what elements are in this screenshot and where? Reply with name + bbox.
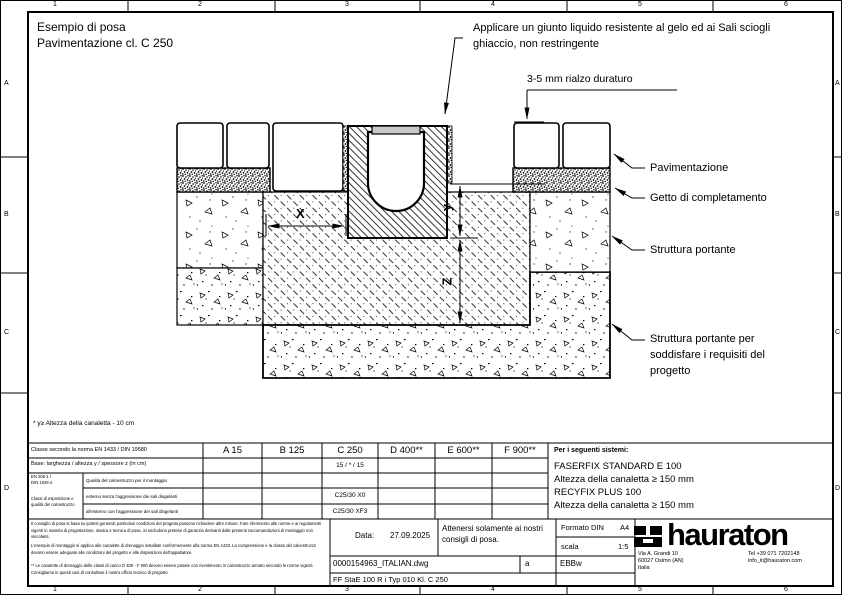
paving-block	[177, 123, 223, 168]
concrete-group-line4: qualità del calcestruzzo	[31, 502, 75, 509]
ruler-col-label: 2	[195, 1, 205, 8]
ruler-col-label: 6	[781, 1, 791, 8]
ruler-col-label: 3	[342, 586, 352, 593]
address-line1: Via A. Grandi 10	[638, 551, 678, 558]
hauraton-logo-icon	[634, 526, 662, 547]
drawing-title-line2: Pavimentazione cl. C 250	[37, 36, 173, 50]
concrete-value-c250: C25/30 X0	[322, 492, 378, 499]
ruler-col-label: 5	[635, 586, 645, 593]
joint-note-line1: Applicare un giunto liquido resistente a…	[473, 22, 770, 34]
ruler-row-label: B	[4, 211, 9, 218]
ruler-col-label: 4	[488, 1, 498, 8]
class-header: C 250	[322, 445, 378, 456]
ruler-col-label: 5	[635, 1, 645, 8]
phone: Tel +39 071 7202148	[748, 551, 800, 558]
ruler-col-label: 3	[342, 1, 352, 8]
date-label: Data:	[355, 531, 374, 540]
supporting-structure-left-lower	[177, 268, 263, 325]
bedding-left	[177, 168, 270, 192]
installation-note: Attenersi solamente ai nostri consigli d…	[442, 523, 550, 545]
doc-code: FF StaE 100 R i Typ 010 Kl. C 250	[333, 575, 448, 584]
ruler-row-label: D	[4, 485, 9, 492]
label-struttura-progetto-1: Struttura portante per	[650, 333, 755, 345]
disclaimer-paragraph-3: ** Le canalette di drenaggio delle class…	[31, 563, 327, 576]
system-line: Altezza della canaletta ≥ 150 mm	[554, 474, 694, 485]
table-row1-label: Classe secondo la norma EN 1433 / DIN 19…	[31, 447, 147, 453]
drawing-sheet: 1 2 3 4 5 6 1 2 3 4 5 6 A B C D A B C D …	[0, 0, 842, 595]
label-pavimentazione: Pavimentazione	[650, 162, 728, 174]
ruler-row-label: A	[4, 80, 9, 87]
ruler-col-label: 6	[781, 586, 791, 593]
cross-section-drawing	[177, 123, 610, 378]
class-header: F 900**	[492, 445, 548, 456]
email: info_it@hauraton.com	[748, 558, 802, 565]
address-line3: Italia	[638, 565, 650, 572]
systems-heading: Per i seguenti sistemi:	[554, 447, 628, 454]
concrete-row-label: Qualità del calcestruzzo per il montaggi…	[86, 478, 167, 483]
disclaimer-paragraph-2: L'esempio di montaggio si applica alle c…	[31, 543, 327, 556]
concrete-row-label: all'esterno con l'aggressione dei sali d…	[86, 509, 178, 514]
rialzo-note: 3-5 mm rialzo duraturo	[527, 73, 633, 85]
class-header: D 400**	[378, 445, 435, 456]
class-header: B 125	[262, 445, 322, 456]
format-value: A4	[620, 523, 629, 532]
scale-label: scala	[561, 542, 579, 551]
ruler-col-label: 1	[50, 586, 60, 593]
revision: a	[525, 559, 529, 568]
concrete-group-line2: DIN 1045-2	[31, 480, 52, 487]
footnote: * y≥ Altezza della canaletta - 10 cm	[33, 420, 134, 427]
drawing-canvas	[0, 0, 842, 595]
dimension-x-label: X	[296, 206, 305, 221]
class-header: E 600**	[435, 445, 492, 456]
concrete-value-c250: C25/30 XF3	[322, 508, 378, 515]
class-header: A 15	[203, 445, 262, 456]
label-struttura: Struttura portante	[650, 244, 736, 256]
grate	[372, 126, 420, 134]
author-initials: EBBw	[560, 559, 582, 568]
paving-block	[273, 123, 343, 191]
label-getto: Getto di completamento	[650, 192, 767, 204]
hauraton-logo-text: hauraton	[667, 521, 788, 549]
scale-value: 1:5	[618, 542, 628, 551]
system-line: Altezza della canaletta ≥ 150 mm	[554, 500, 694, 511]
ruler-col-label: 1	[50, 1, 60, 8]
address-line2: 60027 Osimo (AN)	[638, 558, 684, 565]
ruler-row-label: C	[835, 329, 840, 336]
file-name: 0000154963_ITALIAN.dwg	[333, 559, 428, 568]
paving-block	[514, 123, 559, 168]
ruler-row-label: A	[835, 80, 840, 87]
disclaimer-paragraph-1: Il consiglio di posa si basa su ipotesi …	[31, 521, 327, 541]
ruler-col-label: 2	[195, 586, 205, 593]
paving-block	[227, 123, 269, 168]
paving-block	[563, 123, 610, 168]
system-line: RECYFIX PLUS 100	[554, 487, 641, 498]
ruler-col-label: 4	[488, 586, 498, 593]
supporting-structure-left	[177, 192, 263, 268]
joint-note-line2: ghiaccio, non restringente	[473, 38, 599, 50]
supporting-structure-right	[530, 192, 610, 272]
dimension-z-label: Z	[439, 278, 454, 286]
ruler-row-label: D	[835, 485, 840, 492]
format-label: Formato DIN	[561, 523, 604, 532]
ruler-row-label: C	[4, 329, 9, 336]
date-value: 27.09.2025	[390, 531, 430, 540]
label-struttura-progetto-2: soddisfare i requisiti del	[650, 349, 765, 361]
base-value-c250: 15 / * / 15	[322, 462, 378, 469]
table-row2-label: Base: larghezza / altezza y / spessore z…	[31, 461, 146, 467]
channel-bore	[368, 132, 424, 211]
ruler-row-label: B	[835, 211, 840, 218]
concrete-row-label: esterno senza l'aggressione dei sali dis…	[86, 494, 177, 499]
bedding-right	[513, 168, 610, 192]
label-struttura-progetto-3: progetto	[650, 365, 690, 377]
system-line: FASERFIX STANDARD E 100	[554, 461, 682, 472]
drawing-title-line1: Esempio di posa	[37, 20, 126, 34]
dimension-y-label: y	[439, 204, 454, 211]
